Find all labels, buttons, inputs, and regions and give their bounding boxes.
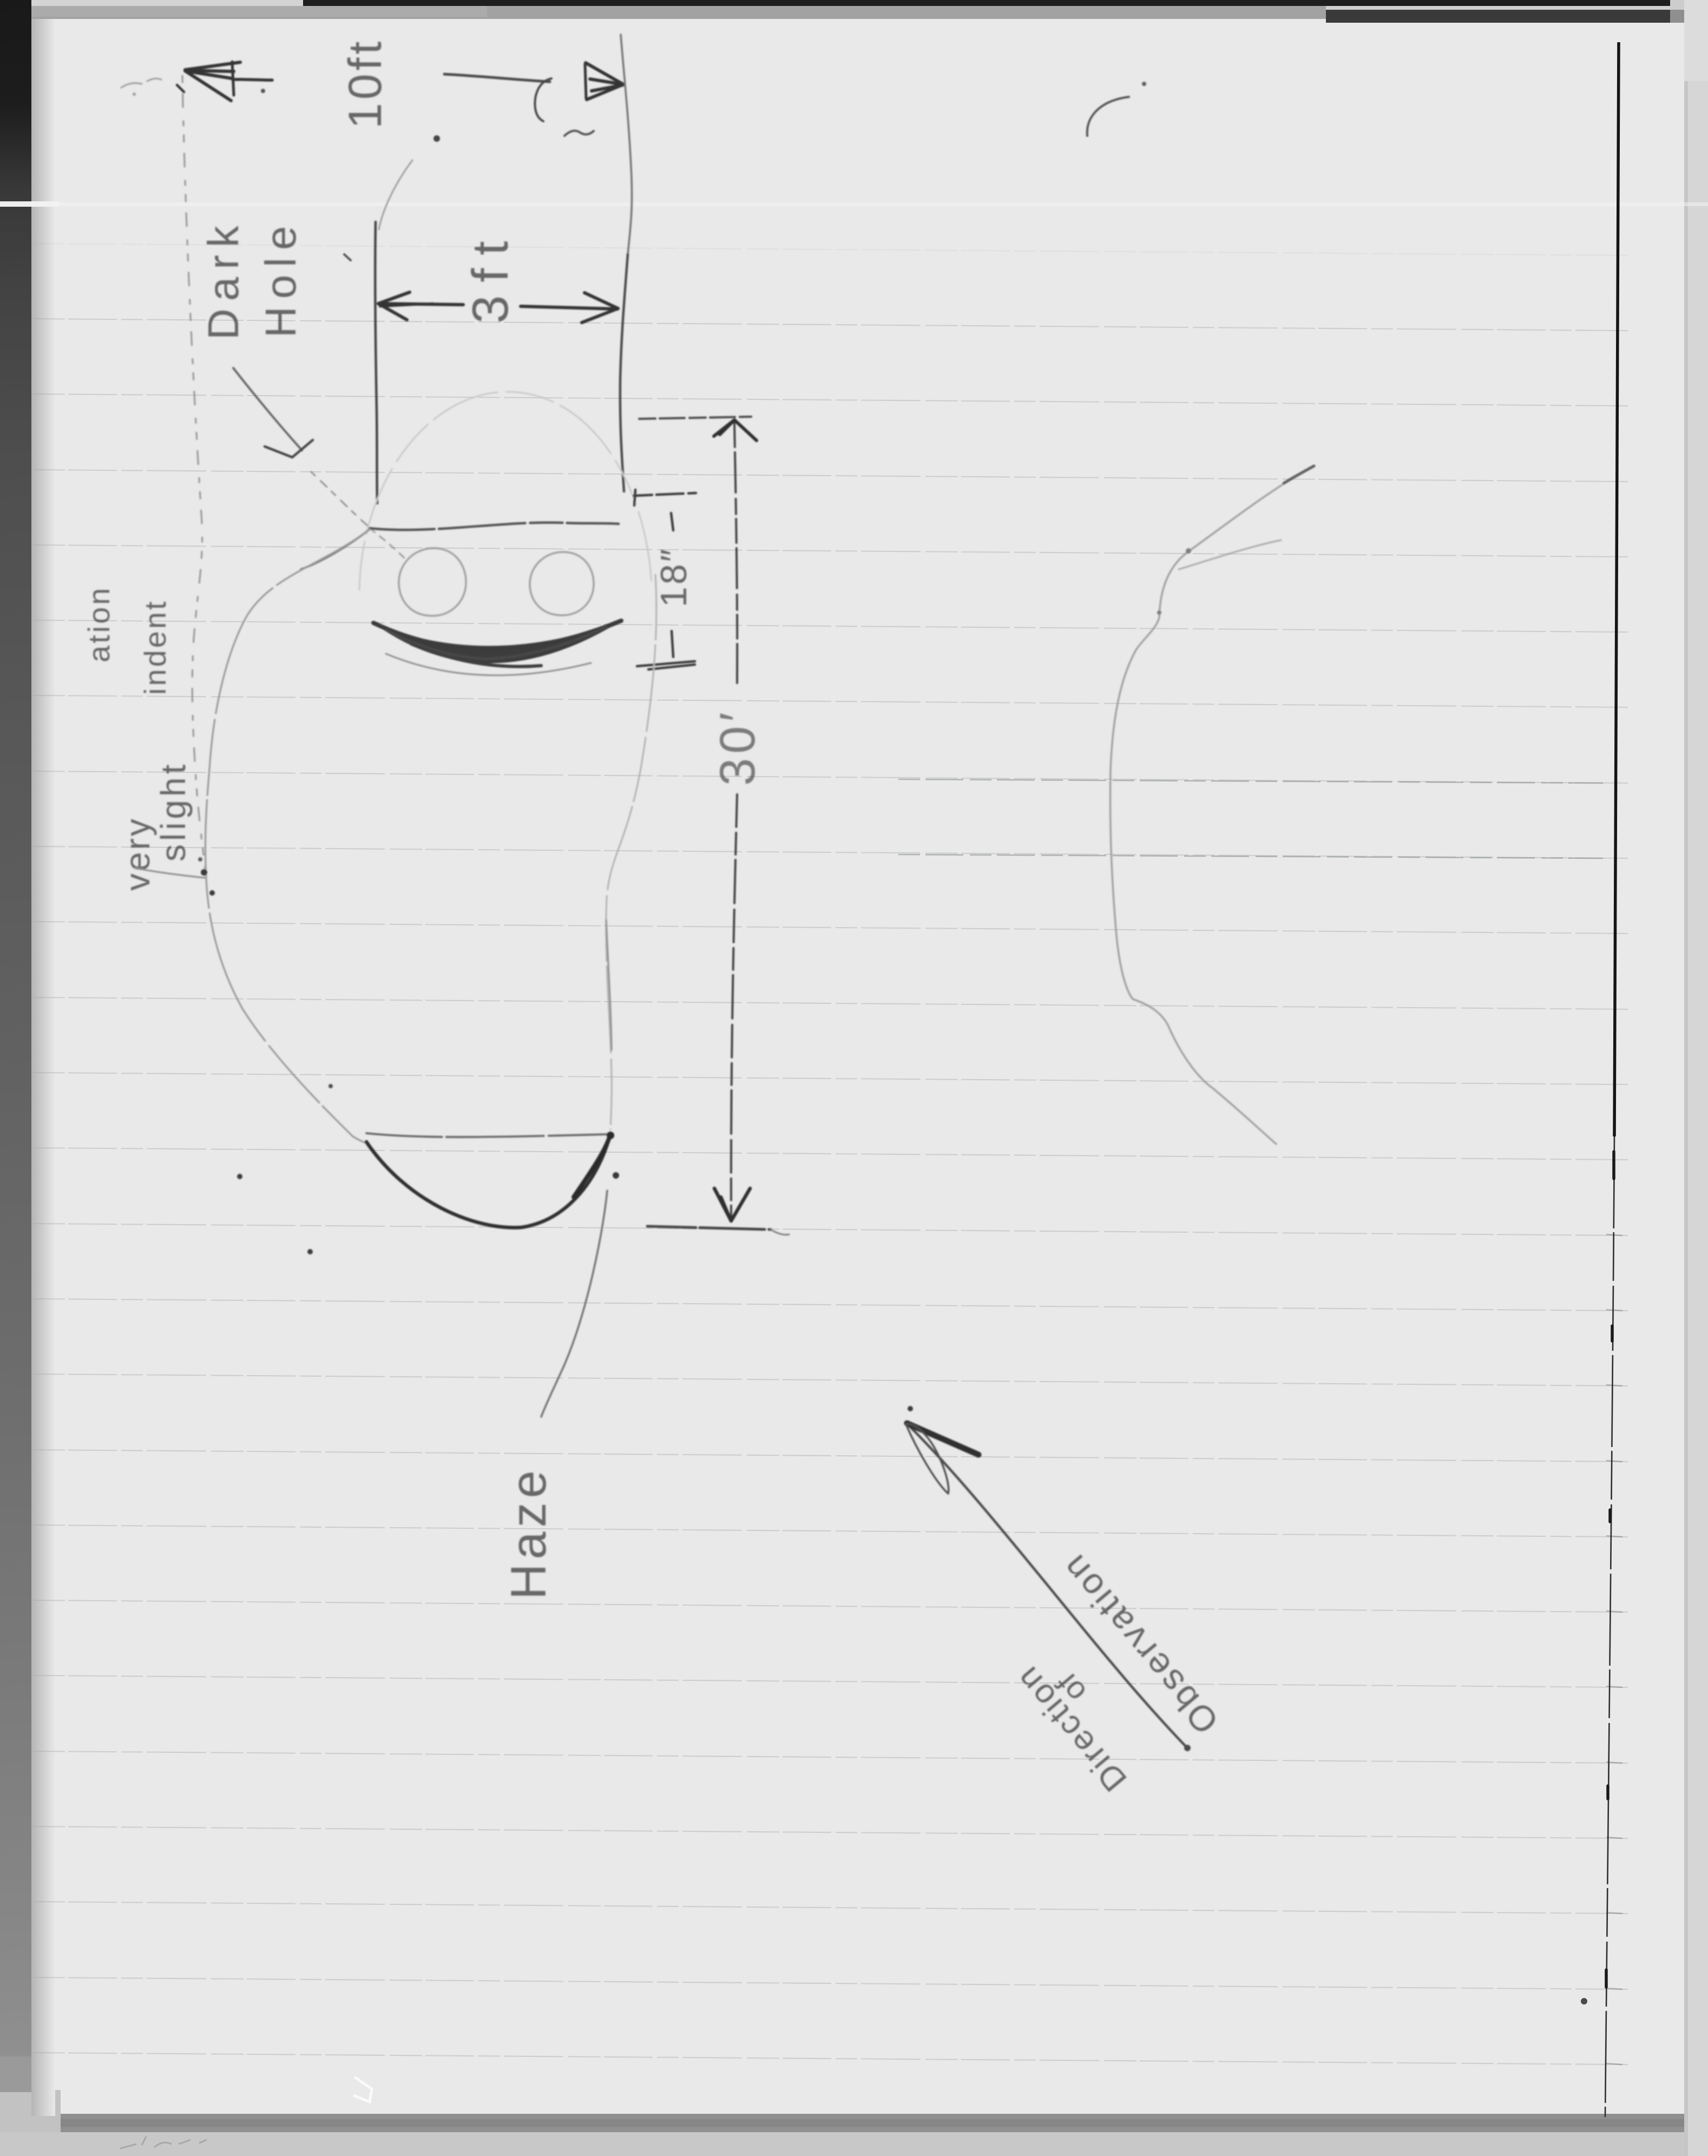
svg-text:10ft: 10ft [339, 38, 391, 129]
svg-text:slight: slight [154, 761, 193, 862]
svg-text:indent: indent [138, 599, 172, 695]
svg-text:30′: 30′ [710, 708, 765, 786]
svg-text:Hole: Hole [257, 218, 305, 338]
svg-text:3ft: 3ft [462, 228, 518, 324]
svg-text:18″: 18″ [653, 547, 694, 607]
svg-text:Dark: Dark [199, 218, 247, 340]
svg-text:Haze: Haze [501, 1466, 556, 1600]
svg-text:very: very [118, 817, 157, 891]
svg-text:ation: ation [82, 586, 116, 662]
